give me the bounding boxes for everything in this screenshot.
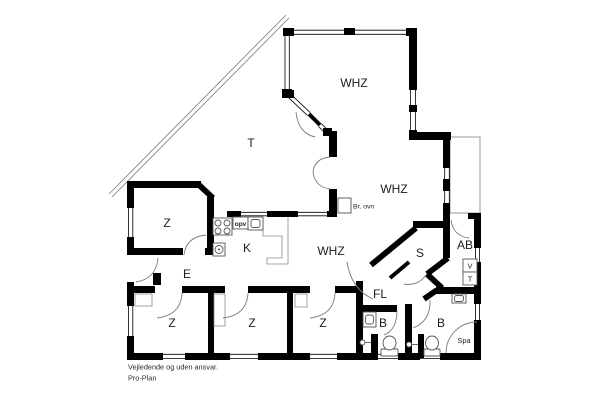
room-label-whz-mid: WHZ — [380, 182, 407, 196]
ab-door-arc — [451, 220, 469, 238]
double-door-arc-upper — [313, 157, 330, 172]
room-label-hall: FL — [373, 287, 387, 301]
room-label-bedroom2: Z — [248, 316, 255, 330]
floor-plan-page: WHZ WHZ WHZ T Z K E S AB FL Z Z Z B B Sp… — [0, 0, 600, 400]
footer: Vejledende og uden ansvar. Pro-Plan — [128, 363, 218, 383]
room-label-terrace: T — [247, 136, 255, 150]
site-boundary-line — [109, 15, 289, 197]
stove-icon — [213, 218, 232, 235]
bath2-door-arc — [413, 300, 430, 328]
bedroom2-door-arc — [223, 293, 248, 318]
kitchen-sink-icon — [248, 217, 263, 230]
footer-disclaimer: Vejledende og uden ansvar. — [128, 363, 218, 372]
room-label-whz-top: WHZ — [340, 76, 367, 90]
room-label-entry: E — [183, 267, 191, 281]
terrace-door-leaf — [309, 114, 320, 125]
bath2-sink-icon — [452, 294, 466, 303]
double-door-arc-lower — [313, 172, 330, 189]
spa-label: Spa — [457, 336, 471, 345]
dishwasher-label: opv — [235, 221, 247, 228]
floor-drain-kitchen-icon — [213, 243, 225, 256]
toilet1-icon — [381, 336, 398, 356]
toilet2-icon — [424, 336, 440, 356]
z-upper-door-arc — [184, 235, 206, 255]
floor-drain-bath2-icon — [407, 342, 419, 347]
room-label-kitchen: K — [243, 241, 251, 255]
floor-drain-bath1-icon — [360, 340, 371, 345]
wardrobe-bedroom1 — [135, 294, 152, 306]
terrace-outline — [450, 137, 480, 213]
room-label-bath2: B — [437, 316, 445, 330]
bedroom3-door-arc — [310, 293, 335, 318]
wardrobe-bedroom2 — [214, 294, 225, 326]
dryer-label: T — [468, 275, 473, 284]
room-label-whz-lower: WHZ — [317, 244, 344, 258]
room-label-bedroom1: Z — [168, 316, 175, 330]
walls — [127, 28, 481, 360]
room-label-z-upper: Z — [163, 216, 170, 230]
wood-stove-box — [338, 198, 351, 213]
room-label-bedroom3: Z — [319, 316, 326, 330]
storage-door-arc — [404, 275, 426, 284]
bath1-sink-icon — [363, 312, 376, 327]
washer-label: V — [467, 262, 472, 271]
kitchen-counter — [263, 217, 288, 264]
wardrobe-bedroom3 — [295, 294, 307, 307]
windows — [129, 30, 480, 358]
floor-plan-svg: WHZ WHZ WHZ T Z K E S AB FL Z Z Z B B Sp… — [0, 0, 600, 400]
room-label-bath1: B — [379, 316, 387, 330]
room-label-storage: S — [416, 246, 424, 260]
room-label-utility: AB — [457, 238, 473, 252]
footer-brand: Pro-Plan — [128, 374, 156, 383]
bedroom1-door-arc — [157, 293, 182, 318]
wood-stove-label: Br. ovn — [353, 204, 374, 211]
